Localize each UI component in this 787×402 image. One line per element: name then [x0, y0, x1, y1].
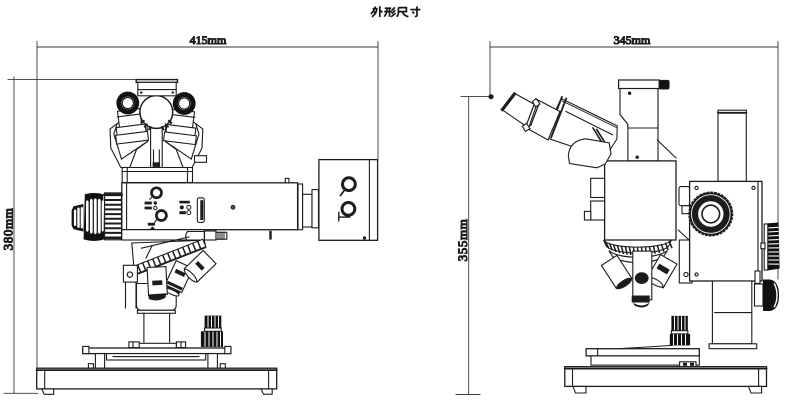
svg-text:380mm: 380mm [1, 208, 16, 251]
svg-text:355mm: 355mm [455, 219, 470, 262]
svg-text:345mm: 345mm [614, 33, 651, 47]
svg-text:415mm: 415mm [190, 33, 227, 47]
